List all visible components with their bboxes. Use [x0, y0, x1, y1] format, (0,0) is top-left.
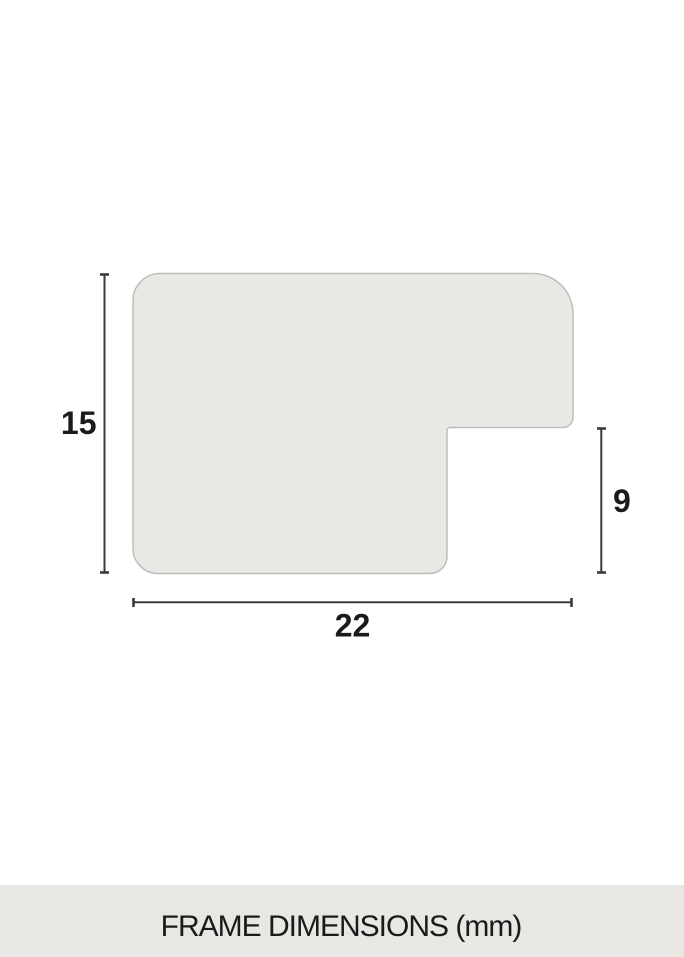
svg-text:9: 9: [613, 483, 631, 519]
svg-text:FRAME DIMENSIONS (mm): FRAME DIMENSIONS (mm): [161, 910, 522, 943]
svg-text:22: 22: [335, 608, 371, 644]
svg-text:15: 15: [61, 405, 97, 441]
